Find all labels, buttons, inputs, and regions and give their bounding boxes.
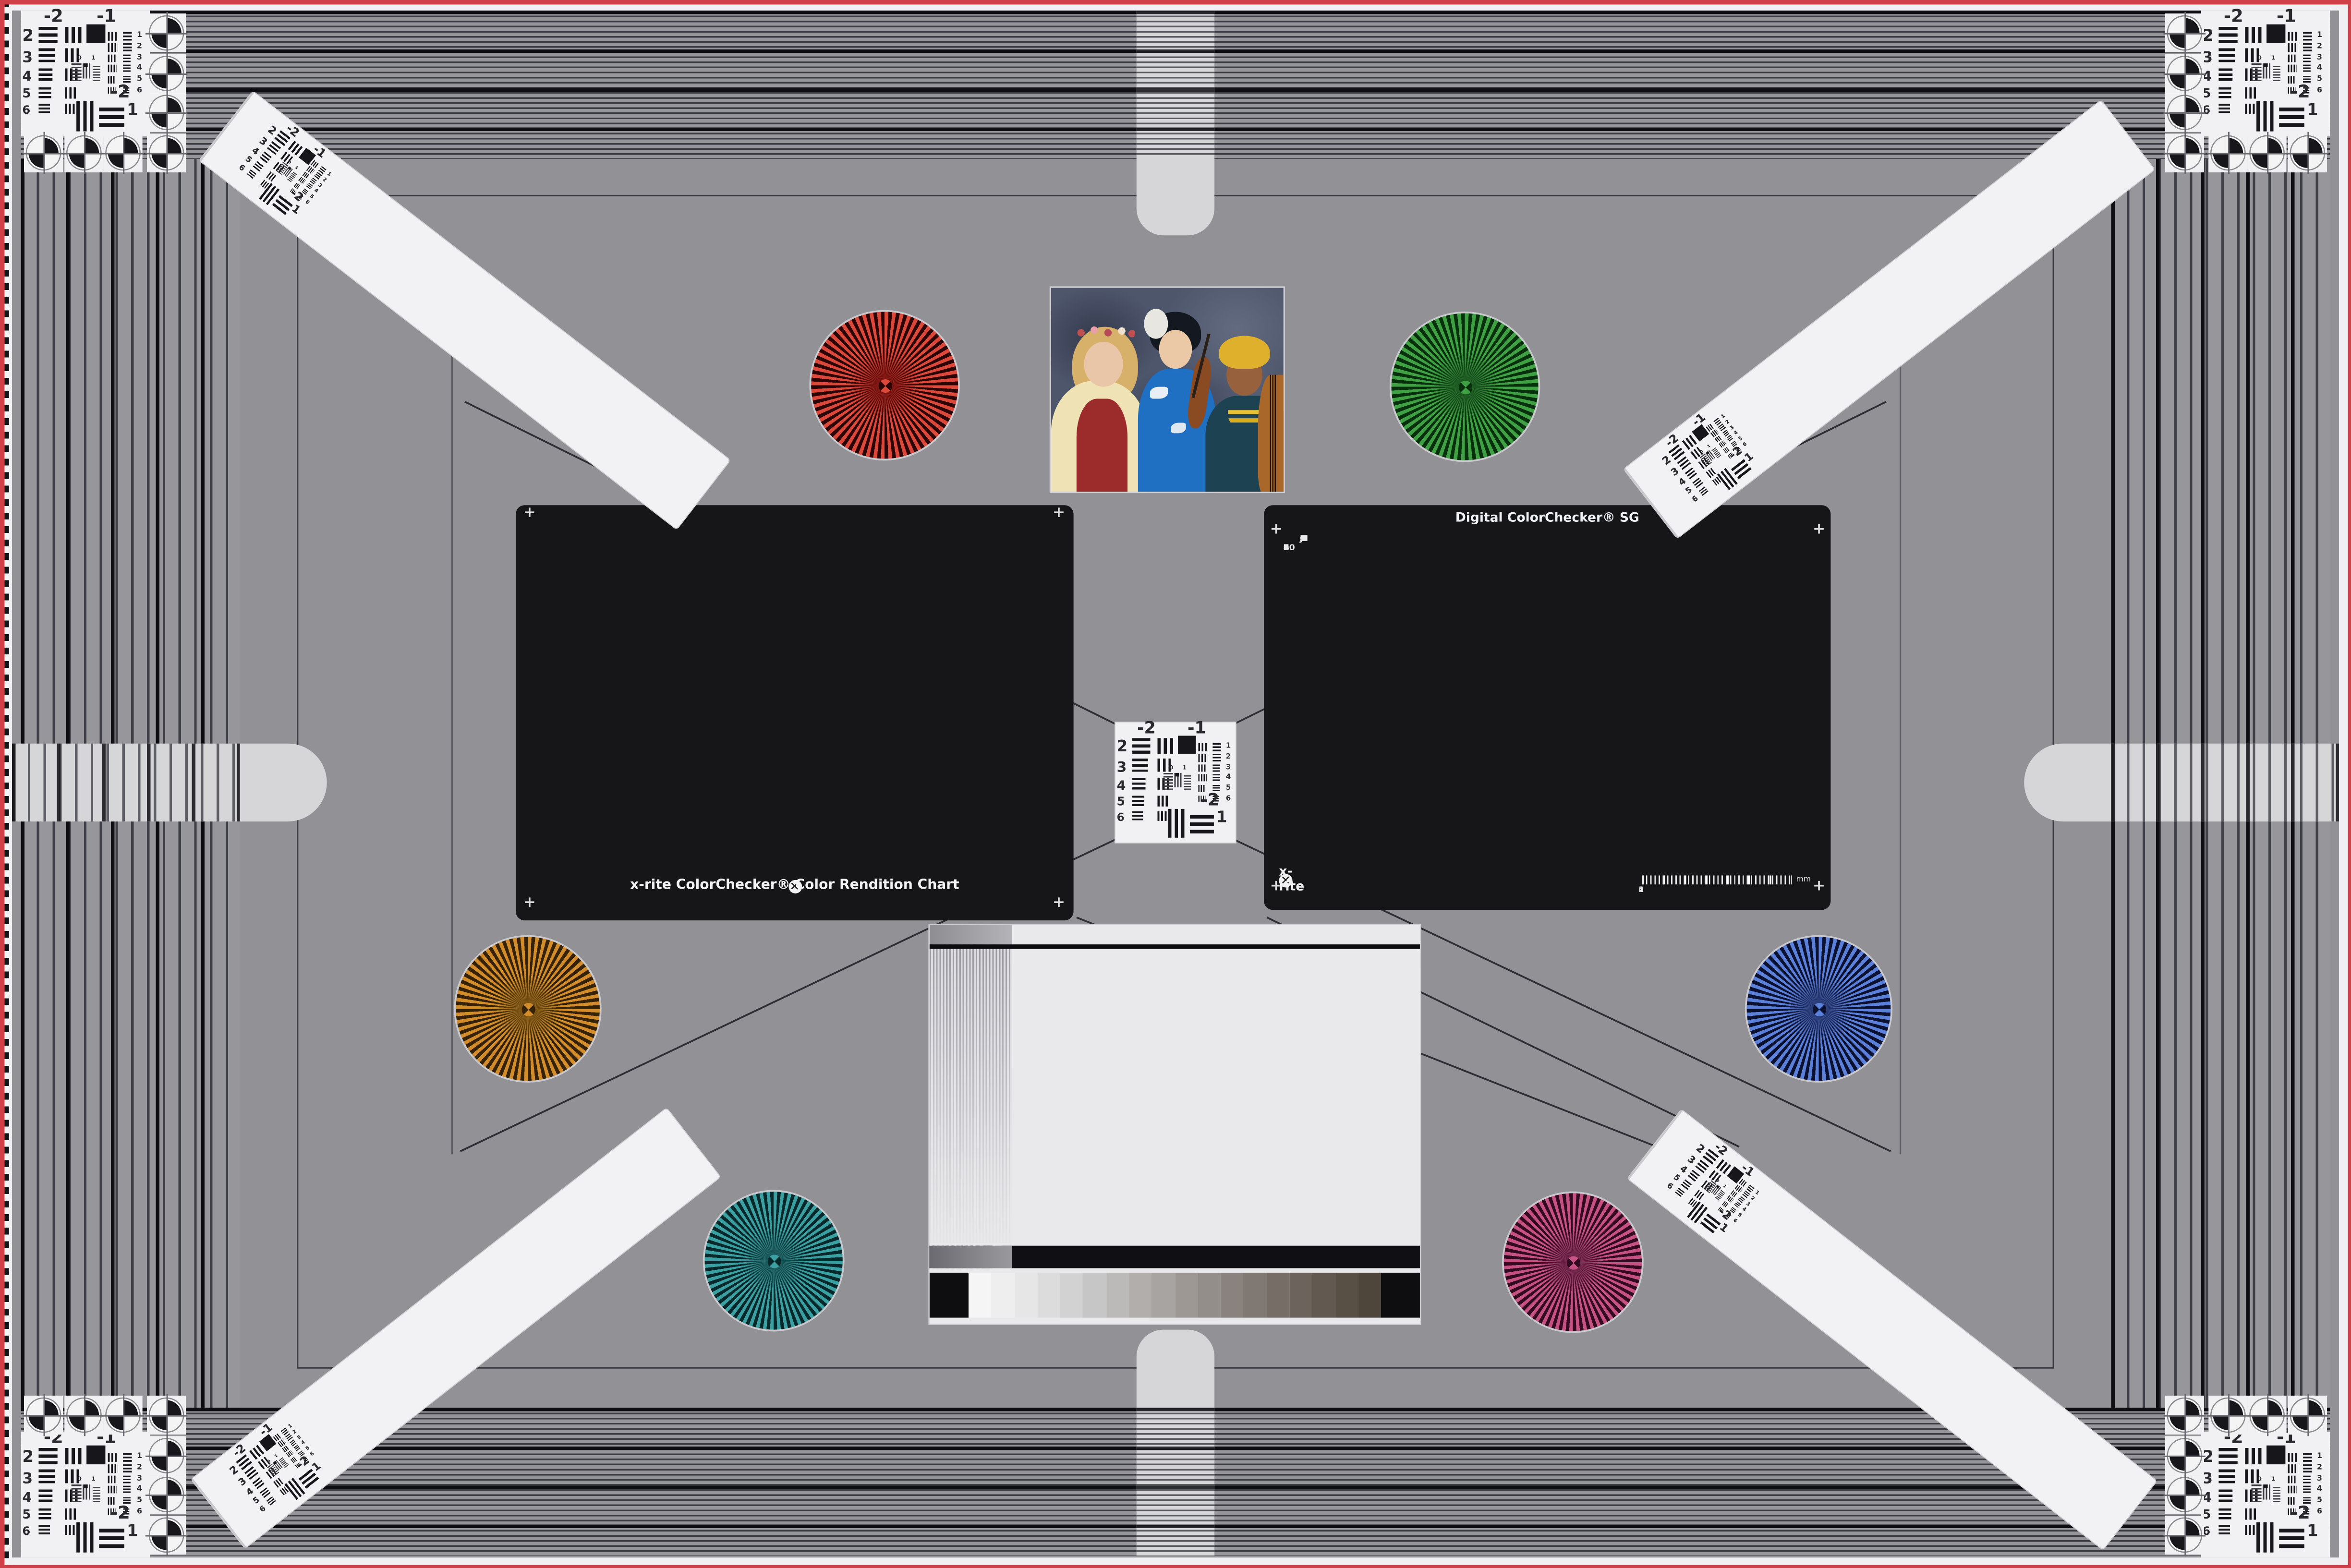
resolution-bar-group <box>108 65 116 73</box>
resolution-bar-group <box>1695 1159 1709 1173</box>
registration-circle-icon <box>2169 59 2199 88</box>
step-wedge-black-end <box>1381 1273 1420 1318</box>
registration-circle-icon <box>69 1400 99 1430</box>
step-wedge-step <box>1289 1273 1312 1318</box>
resolution-bar-group <box>1738 1196 1745 1203</box>
registration-circle-icon <box>151 59 181 88</box>
usaf-number: 1 <box>127 102 138 120</box>
usaf-number: 1 <box>326 171 331 177</box>
resolution-bar-group <box>108 43 118 52</box>
usaf-group-label: -2 <box>2224 8 2243 27</box>
resolution-bar-group <box>1198 764 1207 772</box>
registration-circle-pad <box>2288 1396 2327 1435</box>
usaf-number: 2 <box>292 1429 298 1435</box>
usaf-group-label: -2 <box>44 8 63 27</box>
resolution-bar-group <box>123 1486 131 1494</box>
resolution-bar-group <box>1157 811 1166 820</box>
resolution-bar-group <box>2303 1475 2311 1484</box>
reference-photo-musicians <box>1050 286 1285 493</box>
usaf-number: 3 <box>257 135 269 147</box>
figure-middle-kimono-crane <box>1150 387 1168 399</box>
usaf-number: 1 <box>2307 1523 2318 1541</box>
usaf-number: 6 <box>1226 796 1231 803</box>
resolution-bar-group <box>1688 1170 1700 1182</box>
registration-circle-icon <box>151 18 181 48</box>
figure-left-flower-crown <box>1075 324 1135 341</box>
usaf-number: 6 <box>22 105 30 117</box>
usaf-number: 0 <box>1169 767 1173 772</box>
resolution-bar-group <box>99 1529 124 1551</box>
usaf-number: 4 <box>2317 1486 2322 1495</box>
registration-circle-icon <box>108 1400 138 1430</box>
usaf-number: 0 <box>78 1478 82 1484</box>
usaf-number: 4 <box>1678 1164 1689 1175</box>
usaf-target: -2-12345612345601-21 <box>21 1432 147 1557</box>
registration-circle-icon <box>151 138 181 168</box>
usaf-number: 3 <box>317 182 323 188</box>
resolution-bar-group <box>2218 69 2233 81</box>
usaf-group-label: -2 <box>295 1454 312 1472</box>
resolution-bar-group <box>65 104 75 113</box>
usaf-number: 3 <box>296 1435 302 1441</box>
colorchecker-sg-card: Digital ColorChecker® SG + + + + 1234567… <box>1264 505 1830 910</box>
resolution-bar-group <box>2303 32 2312 41</box>
usaf-number: 4 <box>1677 476 1688 487</box>
usaf-number: 5 <box>22 1510 31 1523</box>
resolution-bar-group <box>1198 774 1206 782</box>
usaf-number: 6 <box>1691 495 1700 505</box>
registration-circle-pad <box>2247 1396 2286 1435</box>
resolution-bar-group <box>38 1448 57 1464</box>
frequency-sweep-chart <box>930 925 1420 1324</box>
resolution-bar-group <box>282 1445 290 1452</box>
usaf-number: 1 <box>2317 1453 2322 1461</box>
resolution-bar-group <box>108 32 118 41</box>
usaf-group-label: -2 <box>288 187 305 204</box>
usaf-number: 3 <box>1729 425 1735 431</box>
usaf-number: 3 <box>1669 466 1681 478</box>
step-wedge-step <box>1175 1273 1198 1318</box>
step-wedge-black-end <box>930 1273 969 1318</box>
usaf-number: 3 <box>2317 1475 2322 1484</box>
registration-circle-pad <box>2165 133 2204 172</box>
usaf-number: 6 <box>1665 1182 1674 1192</box>
registration-circle-icon <box>151 1441 181 1471</box>
registration-plus-icon: + <box>1053 510 1065 519</box>
resolution-bar-group <box>2218 27 2237 43</box>
step-wedge-step <box>1083 1273 1106 1318</box>
resolution-bar-group <box>1685 467 1697 479</box>
resolution-bar-group <box>1184 775 1191 790</box>
figure-left-face <box>1084 342 1123 387</box>
usaf-number: 1 <box>2307 102 2318 120</box>
usaf-number: 6 <box>137 1508 142 1517</box>
usaf-number: 1 <box>1183 767 1187 772</box>
step-wedge-step <box>969 1273 992 1318</box>
usaf-number: 1 <box>2317 32 2322 40</box>
usaf-number: 5 <box>2317 1497 2322 1506</box>
registration-circle-pad <box>2208 1396 2247 1435</box>
siemens-star-teal <box>705 1192 843 1329</box>
registration-plus-icon: + <box>523 510 536 519</box>
usaf-black-square <box>1178 736 1196 753</box>
registration-circle-icon <box>2252 138 2282 168</box>
resolution-bar-group <box>1212 774 1220 782</box>
siemens-star-magenta <box>1504 1193 1642 1331</box>
corner-usaf-card: -2-12345612345601-21 <box>21 11 150 136</box>
registration-circle-icon <box>2169 18 2199 48</box>
usaf-number: 3 <box>1226 764 1231 772</box>
resolution-bar-group <box>260 1487 270 1498</box>
usaf-number: 1 <box>275 1455 279 1459</box>
resolution-bar-group <box>260 151 272 163</box>
usaf-micro-square <box>84 1484 88 1488</box>
resolution-bar-group <box>288 140 303 155</box>
ruler-number: 6 <box>1639 886 1644 895</box>
usaf-number: 6 <box>1743 442 1748 448</box>
registration-circle-pad <box>24 133 63 172</box>
resolution-bar-group <box>72 63 82 81</box>
usaf-number: 1 <box>2272 1478 2276 1484</box>
inverse-square-wave-strip <box>930 1246 1420 1268</box>
usaf-number: 3 <box>22 49 33 65</box>
usaf-number: 2 <box>22 1449 34 1467</box>
resolution-bar-group <box>2303 1486 2311 1494</box>
usaf-group-label: -2 <box>110 84 130 102</box>
amplitude-fade-overlay <box>930 949 1420 1242</box>
usaf-number: 6 <box>2317 87 2322 96</box>
resolution-bar-group <box>286 1450 293 1458</box>
usaf-number: 1 <box>1216 810 1227 826</box>
registration-circle-pad <box>147 133 186 172</box>
resolution-bar-group <box>2288 32 2298 41</box>
usaf-number: 6 <box>237 163 246 172</box>
resolution-bar-group <box>294 1445 301 1452</box>
usaf-number: 3 <box>1745 1201 1751 1207</box>
usaf-number: 4 <box>137 1486 142 1495</box>
usaf-number: 2 <box>1661 455 1673 468</box>
colorchecker-24-card: + + + + ✕ x-rite ColorChecker® Color Ren… <box>516 505 1074 920</box>
resolution-bar-group <box>1706 468 1716 478</box>
cc24-caption: ✕ x-rite ColorChecker® Color Rendition C… <box>516 871 1074 901</box>
resolution-bar-group <box>99 108 124 130</box>
resolution-bar-group <box>2245 87 2255 98</box>
resolution-bar-group <box>1212 743 1221 751</box>
cc24-caption-text: x-rite ColorChecker® Color Rendition Cha… <box>630 879 959 893</box>
test-chart-scene: + + + + ✕ x-rite ColorChecker® Color Ren… <box>0 0 2351 1568</box>
usaf-number: 1 <box>288 1423 293 1430</box>
registration-circle-icon <box>151 1520 181 1550</box>
figure-right-cello-strings <box>1270 375 1276 494</box>
usaf-number: 5 <box>22 88 31 101</box>
resolution-bar-group <box>2218 1490 2233 1502</box>
resolution-bar-group <box>2288 43 2298 52</box>
registration-circle-pad <box>2165 1516 2204 1555</box>
resolution-bar-group <box>2288 1486 2296 1494</box>
usaf-number: 1 <box>2272 57 2276 63</box>
usaf-number: 5 <box>243 155 253 165</box>
usaf-number: 5 <box>1672 1173 1681 1183</box>
usaf-number: 4 <box>244 1486 255 1497</box>
resolution-bar-group <box>1682 435 1697 450</box>
registration-circle-icon <box>2169 1480 2199 1509</box>
resolution-bar-group <box>1212 753 1221 761</box>
registration-circle-pad <box>147 1396 186 1435</box>
usaf-number: 2 <box>1226 753 1231 761</box>
resolution-bar-group <box>1132 796 1144 806</box>
resolution-bar-group <box>2218 87 2231 98</box>
corner-fiducial-1: -2-12345612345601-21 <box>2147 11 2330 168</box>
usaf-number: 5 <box>305 1446 311 1452</box>
resolution-bar-group <box>2288 65 2296 73</box>
usaf-black-square <box>86 1446 105 1464</box>
resolution-bar-group <box>1716 1159 1731 1174</box>
usaf-number: 3 <box>237 1476 248 1488</box>
usaf-group-label: -1 <box>2277 8 2296 27</box>
usaf-number: 0 <box>2258 57 2262 63</box>
registration-circle-pad <box>64 133 103 172</box>
resolution-bar-group <box>1168 809 1188 838</box>
resolution-bar-group <box>72 1484 82 1502</box>
resolution-bar-group <box>1157 738 1173 753</box>
resolution-bar-group <box>2273 1487 2280 1502</box>
usaf-number: 1 <box>1226 743 1231 750</box>
resolution-bar-group <box>267 1496 276 1506</box>
usaf-group-label: -1 <box>97 8 116 27</box>
usaf-group-label: -2 <box>110 1505 130 1523</box>
siemens-star-orange <box>456 937 600 1081</box>
resolution-bar-group <box>38 69 53 81</box>
resolution-bar-group <box>1692 478 1703 488</box>
resolution-bar-group <box>1715 435 1722 443</box>
figure-right-turban <box>1219 336 1270 369</box>
resolution-bar-group <box>1163 773 1173 790</box>
step-wedge-step <box>1244 1273 1267 1318</box>
resolution-bar-group <box>2256 1522 2277 1553</box>
corner-fiducial-2: -2-12345612345601-21 <box>21 1400 204 1557</box>
step-wedge-step <box>1014 1273 1037 1318</box>
step-wedge-step <box>1312 1273 1335 1318</box>
resolution-bar-group <box>244 1466 258 1480</box>
usaf-black-square <box>2266 24 2285 43</box>
usaf-number: 4 <box>313 188 318 194</box>
usaf-number: 5 <box>1117 797 1125 809</box>
resolution-bar-group <box>1675 1188 1684 1197</box>
registration-circle-icon <box>151 97 181 127</box>
siemens-star-green <box>1392 314 1539 460</box>
usaf-group-label: -2 <box>1137 720 1156 738</box>
usaf-number: 6 <box>137 87 142 96</box>
usaf-group-label: -1 <box>1188 720 1206 738</box>
usaf-number: 5 <box>1226 785 1231 793</box>
step-wedge-step <box>1266 1273 1289 1318</box>
sg-mm-ruler: mm 0123456 <box>1642 875 1810 899</box>
resolution-bar-group <box>2288 1475 2297 1484</box>
registration-circle-pad <box>147 1436 186 1475</box>
usaf-number: 2 <box>137 1464 142 1472</box>
resolution-bar-group <box>123 65 131 73</box>
usaf-target: -2-12345612345601-21 <box>1115 723 1236 843</box>
resolution-bar-group <box>1727 435 1733 442</box>
usaf-number: 4 <box>2317 65 2322 73</box>
usaf-number: 6 <box>1732 1218 1738 1225</box>
usaf-number: 4 <box>137 65 142 73</box>
usaf-micro-square <box>2264 63 2268 67</box>
resolution-bar-group <box>76 1522 97 1553</box>
resolution-bar-group <box>38 87 51 98</box>
usaf-number: 1 <box>127 1523 138 1541</box>
resolution-bar-group <box>267 141 281 155</box>
usaf-number: 1 <box>1722 1185 1726 1190</box>
usaf-group-label: -2 <box>2290 84 2310 102</box>
resolution-bar-group <box>2256 101 2277 132</box>
resolution-bar-group <box>2279 1529 2304 1551</box>
resolution-bar-group <box>38 1508 51 1519</box>
sg-brand-text: x-rite <box>1279 865 1304 895</box>
resolution-bar-group <box>247 169 256 178</box>
resolution-bar-group <box>2303 1464 2312 1473</box>
usaf-number: 1 <box>137 32 142 40</box>
resolution-bar-group <box>306 182 313 189</box>
figure-middle-face <box>1159 330 1192 369</box>
resolution-bar-group <box>2252 1484 2262 1502</box>
cc24-patch-grid <box>535 523 1054 865</box>
registration-circle-pad <box>2247 133 2286 172</box>
resolution-bar-group <box>2245 1448 2261 1464</box>
usaf-group-label: -2 <box>1727 445 1745 462</box>
step-wedge-step <box>992 1273 1015 1318</box>
registration-circle-icon <box>2292 138 2322 168</box>
registration-circle-icon <box>2169 138 2199 168</box>
registration-circle-icon <box>2169 1520 2199 1550</box>
center-resolution-card: -2-12345612345601-21 <box>1115 723 1236 843</box>
resolution-bar-group <box>123 1475 131 1484</box>
resolution-bar-group <box>1198 753 1207 761</box>
registration-circle-icon <box>28 1400 58 1430</box>
registration-plus-icon: + <box>1270 526 1283 535</box>
resolution-bar-group <box>108 1464 118 1473</box>
usaf-number: 2 <box>2317 43 2322 51</box>
registration-circle-icon <box>28 138 58 168</box>
usaf-number: 5 <box>1738 436 1744 443</box>
usaf-number: 1 <box>293 166 298 170</box>
resolution-bar-group <box>2218 48 2235 63</box>
usaf-number: 6 <box>22 1526 30 1538</box>
usaf-micro-square <box>84 63 88 67</box>
usaf-number: 4 <box>22 1491 32 1505</box>
siemens-star-blue <box>1747 937 1891 1081</box>
resolution-bar-group <box>2218 1470 2235 1484</box>
usaf-number: 5 <box>2317 76 2322 84</box>
registration-circle-icon <box>2213 138 2243 168</box>
registration-plus-icon: + <box>1813 883 1825 892</box>
usaf-black-square <box>2266 1446 2285 1464</box>
registration-circle-icon <box>2169 97 2199 127</box>
registration-circle-pad <box>2165 54 2204 93</box>
figure-left-vest <box>1077 399 1127 494</box>
figure-middle-kimono-crane <box>1171 423 1186 434</box>
usaf-micro-square <box>2264 1484 2268 1488</box>
usaf-number: 2 <box>1117 739 1128 756</box>
resolution-bar-group <box>1695 1190 1704 1199</box>
corner-fiducial-3: -2-12345612345601-21 <box>2147 1400 2330 1557</box>
step-wedge-step <box>1152 1273 1175 1318</box>
usaf-number: 6 <box>304 199 310 205</box>
resolution-bar-group <box>108 1475 117 1484</box>
resolution-bar-group <box>311 159 320 168</box>
registration-circle-pad <box>64 1396 103 1435</box>
corner-fiducial-0: -2-12345612345601-21 <box>21 11 204 168</box>
resolution-bar-group <box>123 43 132 52</box>
resolution-bar-group <box>93 66 100 81</box>
resolution-bar-group <box>123 54 131 62</box>
usaf-number: 4 <box>1741 1207 1746 1213</box>
usaf-number: 5 <box>1736 1213 1742 1219</box>
resolution-bar-group <box>65 1508 76 1519</box>
resolution-bar-group <box>1190 815 1214 836</box>
usaf-number: 4 <box>1733 431 1739 437</box>
registration-circle-pad <box>147 13 186 52</box>
usaf-number: 3 <box>1686 1154 1697 1166</box>
resolution-bar-group <box>2279 108 2304 130</box>
corner-usaf-card: -2-12345612345601-21 <box>21 1432 150 1557</box>
usaf-number: 3 <box>137 1475 142 1484</box>
resolution-bar-group <box>76 101 97 132</box>
corner-usaf-card: -2-12345612345601-21 <box>2201 11 2330 136</box>
usaf-number: 0 <box>2258 1478 2262 1484</box>
resolution-bar-group <box>65 87 76 98</box>
registration-circle-icon <box>151 1480 181 1509</box>
resolution-bar-group <box>65 1448 82 1464</box>
grayscale-step-wedge <box>930 1273 1420 1318</box>
usaf-number: 2 <box>228 1464 241 1478</box>
ruler-unit: mm <box>1796 875 1811 884</box>
resolution-bar-group <box>2303 1453 2312 1462</box>
usaf-number: 4 <box>22 70 32 84</box>
registration-circle-pad <box>24 1396 63 1435</box>
usaf-number: 4 <box>1117 779 1126 792</box>
ruler-ticks <box>1642 875 1792 884</box>
registration-circle-icon <box>69 138 99 168</box>
resolution-bar-group <box>38 1490 53 1502</box>
usaf-number: 0 <box>78 57 82 63</box>
registration-circle-icon <box>2213 1400 2243 1430</box>
resolution-bar-group <box>1157 796 1167 806</box>
step-wedge-step <box>1335 1273 1358 1318</box>
usaf-group-label: -2 <box>2290 1505 2310 1523</box>
resolution-bar-group <box>2303 43 2312 52</box>
usaf-number: 1 <box>1708 445 1712 450</box>
usaf-number: 6 <box>310 1451 315 1458</box>
usaf-number: 1 <box>92 57 96 63</box>
usaf-number: 4 <box>250 145 261 156</box>
registration-circle-pad <box>2208 133 2247 172</box>
resolution-bar-group <box>1734 1202 1741 1208</box>
resolution-bar-group <box>108 1486 116 1494</box>
resolution-bar-group <box>267 171 276 181</box>
resolution-bar-group <box>1132 759 1148 772</box>
step-wedge-step <box>1358 1273 1381 1318</box>
resolution-bar-group <box>2218 1508 2231 1519</box>
inverse-square-wave-segment <box>930 1246 1012 1268</box>
resolution-bar-group <box>38 1525 49 1534</box>
usaf-number: 5 <box>137 1497 142 1506</box>
registration-circle-icon <box>2169 1441 2199 1471</box>
resolution-bar-group <box>1681 1180 1692 1190</box>
sg-col-label: N <box>1300 534 1307 546</box>
usaf-number: 3 <box>137 54 142 62</box>
usaf-number: 2 <box>266 124 278 137</box>
